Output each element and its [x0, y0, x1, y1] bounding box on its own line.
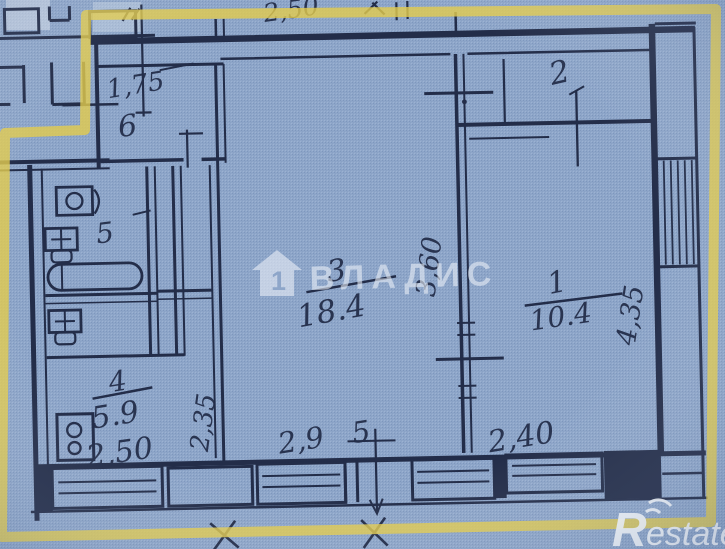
scan-vignette — [0, 0, 725, 549]
floorplan-svg: 2,50 1,75 6 5 4 5.9 2,50 2,35 3 18.4 3,6… — [0, 0, 725, 549]
floorplan-scan: 2,50 1,75 6 5 4 5.9 2,50 2,35 3 18.4 3,6… — [0, 0, 725, 549]
